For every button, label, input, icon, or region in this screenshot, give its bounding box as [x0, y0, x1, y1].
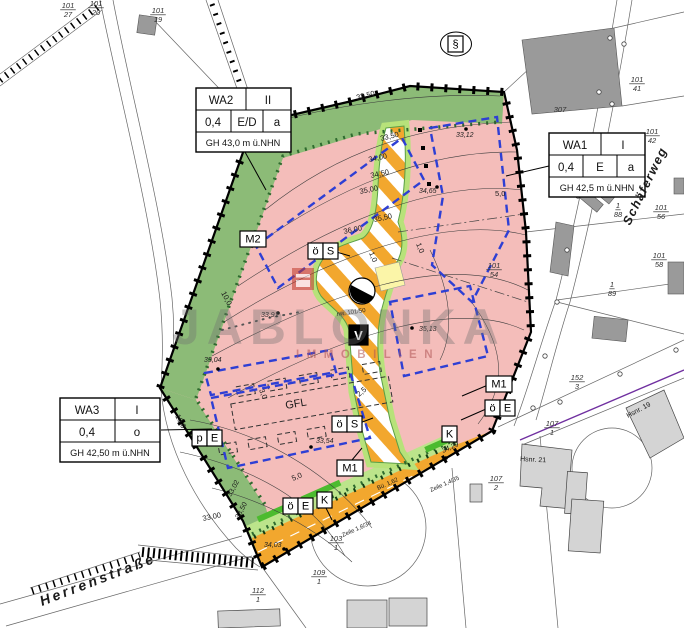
zone-tag-paragraph: §: [441, 32, 472, 56]
parcel-denominator: 42: [648, 136, 657, 145]
parcel-numerator: 152: [571, 373, 584, 382]
watermark-subtitle: IMMOBILIEN: [296, 349, 440, 361]
parcel-numerator: 1: [610, 280, 614, 289]
parcel-numerator: 307: [554, 105, 567, 114]
parcel-numerator: 101: [90, 0, 103, 8]
zone-tag-oes-1: öS: [308, 243, 338, 259]
parcel-numerator: 101: [488, 261, 501, 270]
watermark-title: JABLONKA: [172, 299, 506, 355]
legend-wa2: WA2 II 0,4 E/D a GH 43,0 m ü.NHN: [196, 88, 291, 152]
spot-dot: [309, 445, 313, 449]
spot-dot: [216, 367, 220, 371]
zone-tag-m1-2: M1: [486, 376, 512, 392]
parcel-denominator: 56: [657, 212, 666, 221]
wa2-floors: II: [265, 95, 271, 107]
spot-value: 33,54: [316, 438, 334, 445]
wa1-floors: I: [621, 140, 624, 152]
parcel-denominator: 1: [334, 543, 338, 552]
wa3-gh: GH 42,50 m ü.NHN: [70, 448, 150, 458]
spot-value: 33,12: [456, 132, 474, 139]
parcel-numerator: 109: [313, 568, 326, 577]
parcel-numerator: 101: [631, 75, 644, 84]
parcel-denominator: 27: [63, 10, 73, 19]
spot-dot: [444, 456, 448, 460]
parcel-denominator: 20: [91, 8, 101, 17]
parcel-denominator: 89: [608, 289, 617, 298]
spot-dot: [464, 127, 468, 131]
wa1-bauweise: E: [596, 162, 604, 174]
wa1-gh: GH 42,5 m ü.NHN: [560, 183, 635, 193]
wa2-grz: 0,4: [205, 117, 222, 129]
parcel-numerator: 101: [655, 203, 668, 212]
dimension-label: 5,0: [495, 189, 505, 198]
plan-svg: WA2 II 0,4 E/D a GH 43,0 m ü.NHN WA1 I 0…: [0, 0, 684, 628]
parcel-numerator: 112: [252, 586, 265, 595]
wa2-bauweise: E/D: [237, 117, 256, 129]
legend-wa1: WA1 I 0,4 E a GH 42,5 m ü.NHN: [549, 133, 645, 197]
tag-letter: ö: [336, 419, 342, 431]
parcel-numerator: 101: [152, 6, 165, 15]
parcel-denominator: 41: [633, 84, 641, 93]
legend-wa3: WA3 I 0,4 o GH 42,50 m ü.NHN: [60, 398, 160, 462]
tag-letter: S: [351, 419, 358, 431]
parcel-denominator: 1: [550, 428, 554, 437]
parcel-denominator: 2: [493, 483, 499, 492]
wa1-grz: 0,4: [558, 162, 575, 174]
parcel-numerator: 1: [616, 201, 620, 210]
wa2-gh: GH 43,0 m ü.NHN: [206, 138, 281, 148]
zone-tag-m1-1: M1: [337, 460, 363, 476]
tag-letter: K: [321, 495, 329, 507]
tag-letter: p: [196, 433, 202, 445]
wa3-name: WA3: [75, 405, 100, 417]
parcel-numerator: 103: [330, 534, 343, 543]
parcel-numerator: 107: [546, 419, 559, 428]
wa1-name: WA1: [563, 140, 588, 152]
parcel-numerator: 107: [490, 474, 503, 483]
tag-letter: ö: [312, 246, 318, 258]
parcel-numerator: 101: [646, 127, 659, 136]
tag-letter: E: [211, 433, 218, 445]
parcel-denominator: 1: [317, 577, 321, 586]
zone-tag-k-1: K: [317, 492, 332, 508]
parcel-denominator: 1: [256, 595, 260, 604]
spot-value: 34,65: [419, 188, 437, 195]
wa2-dach: a: [274, 117, 281, 129]
wa2-name: WA2: [209, 95, 234, 107]
zone-tag-pe: pE: [192, 430, 222, 446]
spot-value: 33,04: [204, 357, 222, 364]
parcel-numerator: 101: [62, 1, 75, 10]
wa3-bauweise: o: [134, 427, 140, 439]
zone-tag-oee-2: öE: [485, 400, 515, 416]
parcel-denominator: 58: [655, 260, 664, 269]
parcel-numerator: 101: [653, 251, 666, 260]
wa3-floors: I: [135, 405, 138, 417]
zone-tag-oes-2: öS: [332, 416, 362, 432]
tag-letter: K: [446, 429, 454, 441]
tag-letter: ö: [287, 501, 293, 513]
building-label: Hsnr. 21: [520, 456, 547, 464]
tag-letter: M2: [245, 234, 260, 246]
tag-letter: M1: [491, 379, 506, 391]
wa1-dach: a: [628, 162, 635, 174]
spot-value: 34,03: [264, 542, 282, 549]
tag-letter: §: [452, 39, 458, 51]
tag-letter: E: [302, 501, 309, 513]
parcel-number: 307: [554, 105, 567, 114]
parcel-denominator: 88: [614, 210, 623, 219]
zoning-plan-map: WA2 II 0,4 E/D a GH 43,0 m ü.NHN WA1 I 0…: [0, 0, 684, 628]
tag-letter: E: [504, 403, 511, 415]
tag-letter: ö: [489, 403, 495, 415]
zone-tag-oee-1: öE: [283, 498, 313, 514]
parcel-denominator: 19: [154, 15, 163, 24]
tag-letter: S: [327, 246, 334, 258]
watermark-logo: [292, 268, 314, 290]
tag-letter: M1: [342, 463, 357, 475]
zone-tag-k-2: K: [442, 426, 457, 442]
zone-tag-m2: M2: [240, 231, 266, 247]
wa3-grz: 0,4: [79, 427, 96, 439]
parcel-denominator: 54: [490, 270, 498, 279]
spot-dot: [282, 547, 286, 551]
